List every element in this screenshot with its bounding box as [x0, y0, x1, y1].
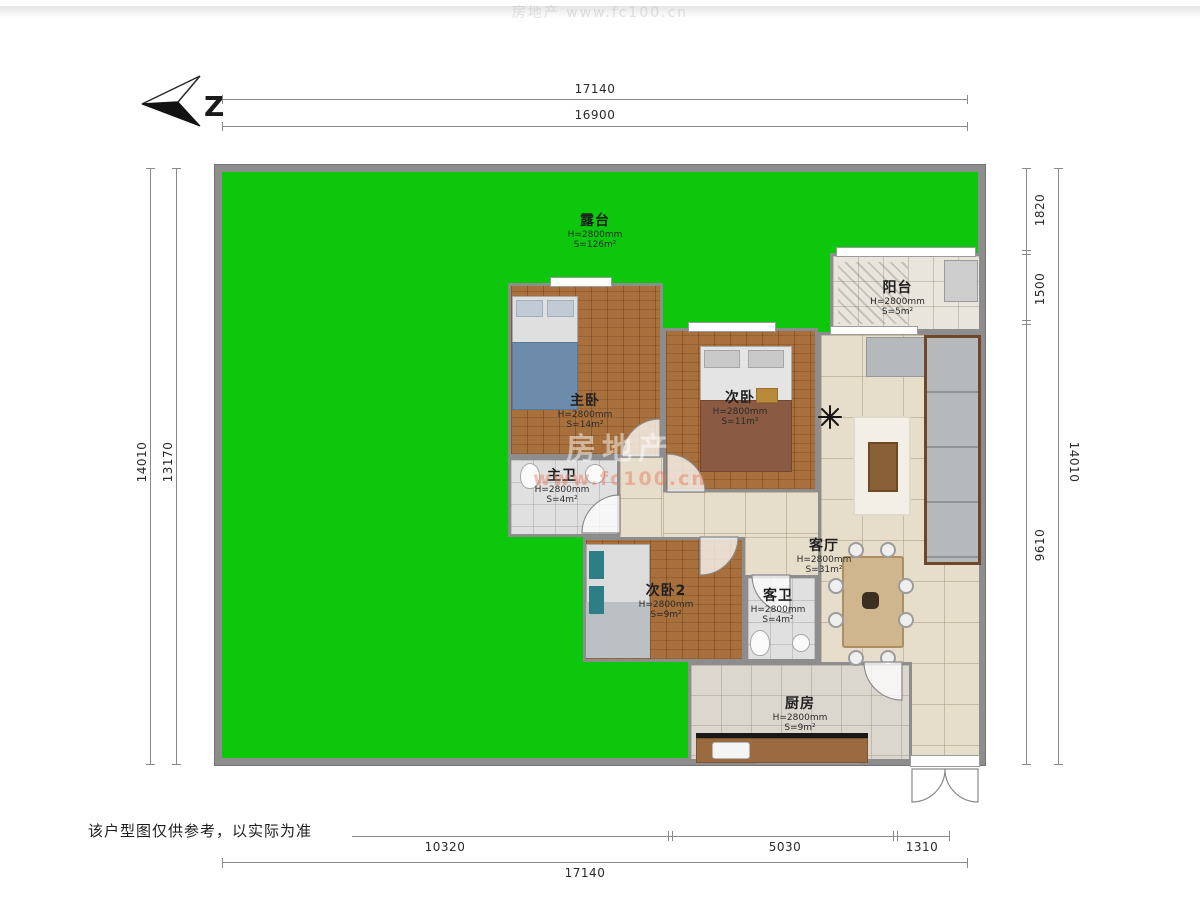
window-master-bedroom — [550, 277, 612, 287]
dim-bottom-3: 1310 — [882, 840, 962, 854]
dim-tick — [146, 764, 155, 765]
disclaimer-text: 该户型图仅供参考，以实际为准 — [88, 820, 312, 841]
dim-tick — [222, 858, 223, 868]
guest-bath-toilet — [750, 630, 770, 656]
dining-chair — [828, 612, 844, 628]
dim-line — [222, 99, 968, 100]
hallway-a — [620, 457, 663, 537]
dim-line — [352, 836, 950, 837]
dim-tick — [967, 858, 968, 868]
label-balcony: 阳台 H=2800mm S=5m² — [850, 280, 945, 318]
label-living-room: 客厅 H=2800mm S=31m² — [780, 538, 868, 576]
entry-door-left — [912, 769, 945, 802]
bedroom3-pillow — [589, 551, 604, 579]
sofa-chaise — [866, 337, 926, 377]
window-living-balcony — [830, 326, 918, 335]
dining-chair — [898, 612, 914, 628]
compass-icon: Z — [142, 76, 224, 126]
entry-door-opening — [910, 755, 980, 767]
kitchen-sink — [712, 742, 750, 759]
window-bedroom-2 — [688, 322, 776, 332]
dim-tick — [672, 831, 673, 841]
bedroom2-pillow — [704, 350, 740, 368]
dim-tick — [222, 95, 223, 104]
dim-tick — [1022, 254, 1031, 255]
label-guest-bathroom: 客卫 H=2800mm S=4m² — [737, 588, 819, 626]
dim-top-total: 17140 — [545, 82, 645, 96]
dim-right-total: 14010 — [1067, 430, 1081, 494]
dim-left-total: 14010 — [135, 430, 149, 494]
window-balcony — [836, 247, 976, 257]
entry-door-right — [945, 769, 978, 802]
kitchen-counter-edge — [696, 733, 868, 738]
dim-tick — [172, 168, 181, 169]
dim-tick — [1022, 764, 1031, 765]
guest-bath-sink — [792, 634, 810, 652]
dining-chair — [828, 578, 844, 594]
bedroom3-pillow — [589, 586, 604, 614]
label-bedroom-3: 次卧2 H=2800mm S=9m² — [616, 583, 716, 621]
dim-tick — [1022, 168, 1031, 169]
dim-tick — [1022, 324, 1031, 325]
label-kitchen: 厨房 H=2800mm S=9m² — [752, 696, 848, 734]
sofa — [924, 335, 981, 565]
balcony-appliance — [944, 260, 978, 302]
dim-bottom-total: 17140 — [535, 866, 635, 880]
dim-left-inner: 13170 — [161, 430, 175, 494]
dim-tick — [967, 122, 968, 131]
dim-bottom-2: 5030 — [735, 840, 835, 854]
dining-chair — [898, 578, 914, 594]
master-bed-pillow — [516, 300, 543, 317]
floorplan-page: 房地产 www.fc100.cn — [0, 0, 1200, 900]
dim-line — [222, 862, 968, 863]
dim-line — [222, 126, 968, 127]
dim-tick — [1022, 250, 1031, 251]
dim-bottom-1: 10320 — [395, 840, 495, 854]
hallway-b — [663, 492, 818, 537]
dining-chair — [880, 650, 896, 666]
dim-tick — [967, 95, 968, 104]
dim-tick — [222, 122, 223, 131]
dim-right-2: 1500 — [1033, 257, 1047, 321]
dim-tick — [668, 831, 669, 841]
dining-chair — [880, 542, 896, 558]
label-master-bathroom: 主卫 H=2800mm S=4m² — [517, 468, 607, 506]
label-master-bedroom: 主卧 H=2800mm S=14m² — [535, 393, 635, 431]
dim-top-inner: 16900 — [545, 108, 645, 122]
dim-tick — [172, 764, 181, 765]
label-bedroom-2: 次卧 H=2800mm S=11m² — [690, 390, 790, 428]
dim-right-1: 1820 — [1033, 178, 1047, 242]
dim-tick — [146, 168, 155, 169]
dim-line — [1026, 168, 1027, 765]
master-bed-pillow — [547, 300, 574, 317]
dim-right-3: 9610 — [1033, 513, 1047, 577]
dim-line — [1058, 168, 1059, 765]
dim-tick — [1022, 320, 1031, 321]
page-top-shadow — [0, 6, 1200, 18]
dim-tick — [1054, 168, 1063, 169]
dim-line — [176, 168, 177, 765]
dining-centerpiece — [862, 592, 879, 609]
label-terrace: 露台 H=2800mm S=126m² — [545, 213, 645, 251]
dining-chair — [848, 650, 864, 666]
coffee-table — [868, 442, 898, 492]
bedroom2-pillow — [748, 350, 784, 368]
dim-line — [150, 168, 151, 765]
dim-tick — [1054, 764, 1063, 765]
